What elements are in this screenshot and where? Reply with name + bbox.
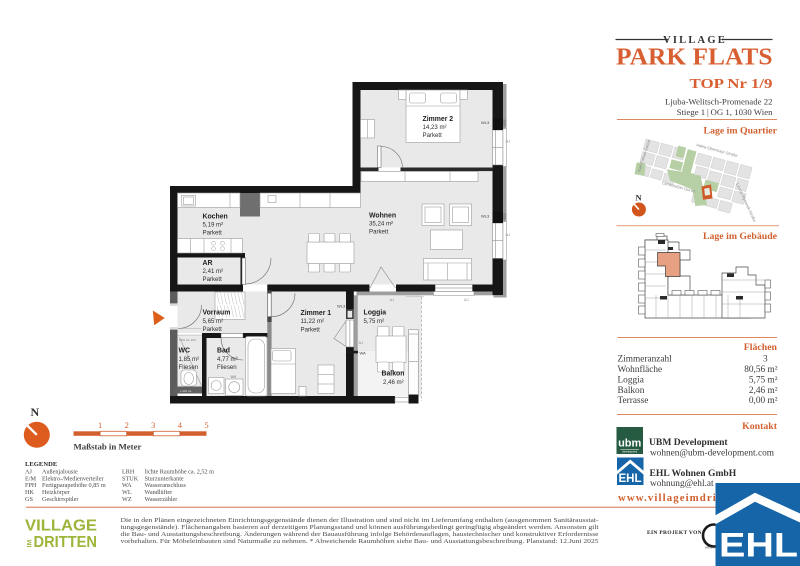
svg-text:5,19 m²: 5,19 m² — [203, 222, 224, 229]
svg-text:AJ: AJ — [390, 297, 395, 302]
svg-text:N: N — [31, 405, 40, 419]
svg-text:Wohnfläche: Wohnfläche — [618, 364, 663, 375]
svg-text:5,75 m²: 5,75 m² — [749, 375, 778, 385]
svg-text:Parkett: Parkett — [369, 229, 389, 236]
svg-text:FPH ca. 102: FPH ca. 102 — [179, 338, 196, 342]
svg-text:Fliesen: Fliesen — [217, 364, 237, 371]
svg-text:wohnen@ubm-development.com: wohnen@ubm-development.com — [650, 449, 775, 459]
svg-text:VILLAGE: VILLAGE — [25, 518, 97, 535]
svg-text:LEGENDE: LEGENDE — [25, 461, 58, 468]
svg-text:WL3: WL3 — [337, 304, 346, 309]
svg-text:Parkett: Parkett — [203, 326, 223, 333]
svg-text:3: 3 — [151, 420, 155, 430]
svg-text:WZ: WZ — [122, 496, 132, 503]
svg-text:AR: AR — [203, 260, 213, 267]
svg-text:wohnung@ehl.at: wohnung@ehl.at — [650, 479, 714, 489]
svg-text:IM: IM — [27, 539, 34, 547]
svg-text:DRITTEN: DRITTEN — [34, 534, 98, 551]
svg-text:5: 5 — [204, 420, 208, 430]
svg-text:WM: WM — [231, 375, 237, 379]
svg-text:TOP Nr 1/9: TOP Nr 1/9 — [690, 77, 773, 92]
svg-text:Geschirrspüler: Geschirrspüler — [42, 496, 78, 503]
svg-text:EHL: EHL — [719, 527, 798, 565]
svg-text:Stiege 1 | OG 1, 1030 Wien: Stiege 1 | OG 1, 1030 Wien — [677, 107, 774, 117]
svg-text:Parkett: Parkett — [301, 326, 321, 333]
svg-text:5,65 m²: 5,65 m² — [203, 318, 224, 325]
svg-text:80,56 m²: 80,56 m² — [744, 365, 777, 375]
svg-text:EIN PROJEKT VON: EIN PROJEKT VON — [647, 530, 702, 536]
svg-text:N: N — [636, 193, 643, 203]
svg-text:2: 2 — [125, 420, 129, 430]
svg-text:Zimmeranzahl: Zimmeranzahl — [618, 355, 673, 365]
svg-text:WL3: WL3 — [481, 214, 490, 219]
svg-text:Die in den Plänen eingezeichne: Die in den Plänen eingezeichneten Einric… — [121, 517, 599, 524]
svg-text:2,41 m²: 2,41 m² — [203, 268, 224, 275]
svg-text:UBM Development: UBM Development — [649, 437, 728, 448]
svg-text:AJ: AJ — [464, 297, 469, 302]
svg-text:Fliesen: Fliesen — [179, 364, 199, 371]
svg-text:vorbehalten. Für Möbeleinbaute: vorbehalten. Für Möbeleinbauten sind Nat… — [121, 538, 599, 545]
svg-text:Bad: Bad — [217, 348, 230, 355]
svg-text:Wohnen: Wohnen — [369, 213, 396, 220]
svg-text:14,23 m²: 14,23 m² — [423, 124, 447, 131]
svg-text:4,77 m²: 4,77 m² — [217, 356, 238, 363]
svg-text:AJ: AJ — [506, 232, 511, 237]
svg-text:35,24 m²: 35,24 m² — [369, 221, 393, 228]
svg-text:GS: GS — [25, 496, 33, 503]
svg-text:EHL Wohnen GmbH: EHL Wohnen GmbH — [650, 468, 737, 479]
svg-text:Balkon: Balkon — [382, 371, 405, 378]
svg-text:AJ: AJ — [359, 340, 364, 345]
svg-text:3: 3 — [763, 355, 768, 365]
svg-text:Balkon: Balkon — [618, 386, 645, 396]
svg-text:2,46 m²: 2,46 m² — [749, 386, 778, 396]
svg-text:die Bau- und Ausstattungsbesch: die Bau- und Ausstattungsbeschreibung. Ä… — [121, 531, 599, 538]
svg-text:WL3: WL3 — [481, 120, 490, 125]
svg-text:EHL: EHL — [619, 473, 642, 485]
svg-text:Terrasse: Terrasse — [618, 396, 649, 406]
svg-text:development: development — [622, 450, 637, 454]
svg-text:tungsgegenstände). Flächenanga: tungsgegenstände). Flächenangaben basier… — [121, 524, 599, 531]
svg-text:4: 4 — [178, 420, 183, 430]
svg-text:5,75 m²: 5,75 m² — [364, 318, 385, 325]
svg-text:AJ: AJ — [506, 139, 511, 144]
svg-text:Vorraum: Vorraum — [203, 310, 231, 317]
svg-text:11,22 m²: 11,22 m² — [301, 318, 325, 325]
svg-text:Parkett: Parkett — [203, 230, 223, 237]
svg-text:Kochen: Kochen — [203, 214, 228, 221]
svg-text:Kontakt: Kontakt — [742, 421, 778, 432]
svg-text:Wasserzähler: Wasserzähler — [145, 496, 178, 503]
svg-text:0,00 m²: 0,00 m² — [749, 396, 778, 406]
svg-text:Maßstab in Meter: Maßstab in Meter — [74, 442, 142, 452]
svg-text:WA: WA — [360, 351, 367, 356]
svg-text:1,85 m²: 1,85 m² — [179, 356, 200, 363]
svg-text:Lage im Gebäude: Lage im Gebäude — [703, 231, 778, 242]
svg-text:Zimmer 1: Zimmer 1 — [301, 310, 332, 317]
svg-text:Zimmer 2: Zimmer 2 — [423, 116, 454, 123]
svg-text:Flächen: Flächen — [744, 342, 778, 353]
svg-text:WC: WC — [179, 348, 191, 355]
svg-text:Loggia: Loggia — [364, 310, 387, 317]
svg-text:Loggia: Loggia — [618, 375, 644, 385]
svg-text:PARK FLATS: PARK FLATS — [616, 44, 773, 71]
svg-text:Parkett: Parkett — [203, 276, 223, 283]
svg-text:Parkett: Parkett — [423, 132, 443, 139]
svg-text:ubm: ubm — [618, 438, 641, 450]
svg-text:Ljuba-Welitsch-Promenade 22: Ljuba-Welitsch-Promenade 22 — [665, 96, 773, 106]
svg-text:1: 1 — [98, 420, 102, 430]
svg-text:2,46 m²: 2,46 m² — [383, 379, 404, 386]
svg-text:Lage im Quartier: Lage im Quartier — [704, 125, 778, 136]
svg-text:L-Wd ca.: L-Wd ca. — [180, 389, 192, 393]
